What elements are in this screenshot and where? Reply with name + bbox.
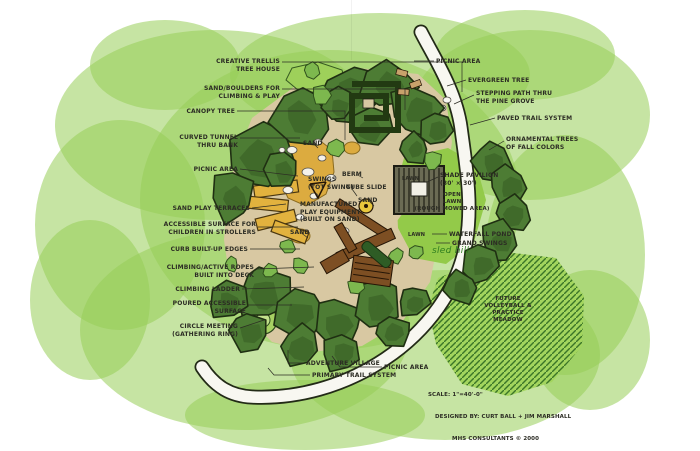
plan-label: ADVENTURE VILLAGE (306, 360, 380, 368)
plan-label: PAVED TRAIL SYSTEM (497, 115, 572, 123)
plan-label: CANOPY TREE (186, 108, 235, 116)
plan-label: CLIMBING LADDER (175, 286, 240, 294)
plan-label: SHADE PAVILION (30' × 30') (440, 172, 498, 187)
plan-label: CURB BUILT-UP EDGES (171, 246, 248, 254)
annotations-layer: CREATIVE TRELLIS TREE HOUSESAND/BOULDERS… (0, 0, 700, 451)
title-block: SCALE: 1"=40'-0" DESIGNED BY: CURT BALL … (428, 377, 571, 451)
plan-label: EVERGREEN TREE (468, 77, 529, 85)
plan-label: SAND (290, 229, 310, 237)
plan-label: PRIMARY TRAIL SYSTEM (312, 372, 396, 380)
plan-label: SAND (358, 197, 378, 205)
plan-label: OPEN LAWN (ROUGH MOWED AREA) (414, 192, 489, 213)
plan-label: ACCESSIBLE SURFACE FOR CHILDREN IN STROL… (164, 221, 256, 236)
plan-label: PICNIC AREA (194, 166, 238, 174)
plan-label: sled hill (432, 246, 469, 257)
scale-note: SCALE: 1"=40'-0" (428, 392, 571, 399)
plan-label: TUBE SLIDE (346, 184, 387, 192)
site-plan-scan: CREATIVE TRELLIS TREE HOUSESAND/BOULDERS… (0, 0, 700, 451)
plan-label: CURVED TUNNEL THRU BANK (179, 134, 238, 149)
designer-credit: DESIGNED BY: CURT BALL + JIM MARSHALL (435, 414, 571, 421)
plan-label: CREATIVE TRELLIS TREE HOUSE (216, 58, 280, 73)
plan-label: WATERFALL POND (449, 231, 512, 239)
plan-label: FUTURE VOLLEYBALL & PRACTICE MEADOW (484, 296, 532, 324)
plan-label: STEPPING PATH THRU THE PINE GROVE (476, 90, 552, 105)
plan-label: CIRCLE MEETING (GATHERING RING) (172, 323, 238, 338)
plan-label: SAND (303, 140, 323, 148)
plan-label: SAND PLAY TERRACES (173, 205, 250, 213)
plan-label: ORNAMENTAL TREES OF FALL COLORS (506, 136, 578, 151)
plan-label: LAWN (402, 176, 419, 182)
firm-credit: MHS CONSULTANTS © 2000 (452, 436, 571, 443)
plan-label: MANUFACTURED PLAY EQUIPMENT (BUILT ON SA… (300, 201, 361, 224)
plan-label: POURED ACCESSIBLE SURFACE (173, 300, 246, 315)
plan-label: PICNIC AREA (384, 364, 428, 372)
plan-label: LAWN (408, 232, 425, 238)
plan-label: PICNIC AREA (436, 58, 480, 66)
plan-label: CLIMBING/ACTIVE ROPES BUILT INTO DECK (167, 264, 254, 279)
plan-label: SAND/BOULDERS FOR CLIMBING & PLAY (204, 85, 280, 100)
